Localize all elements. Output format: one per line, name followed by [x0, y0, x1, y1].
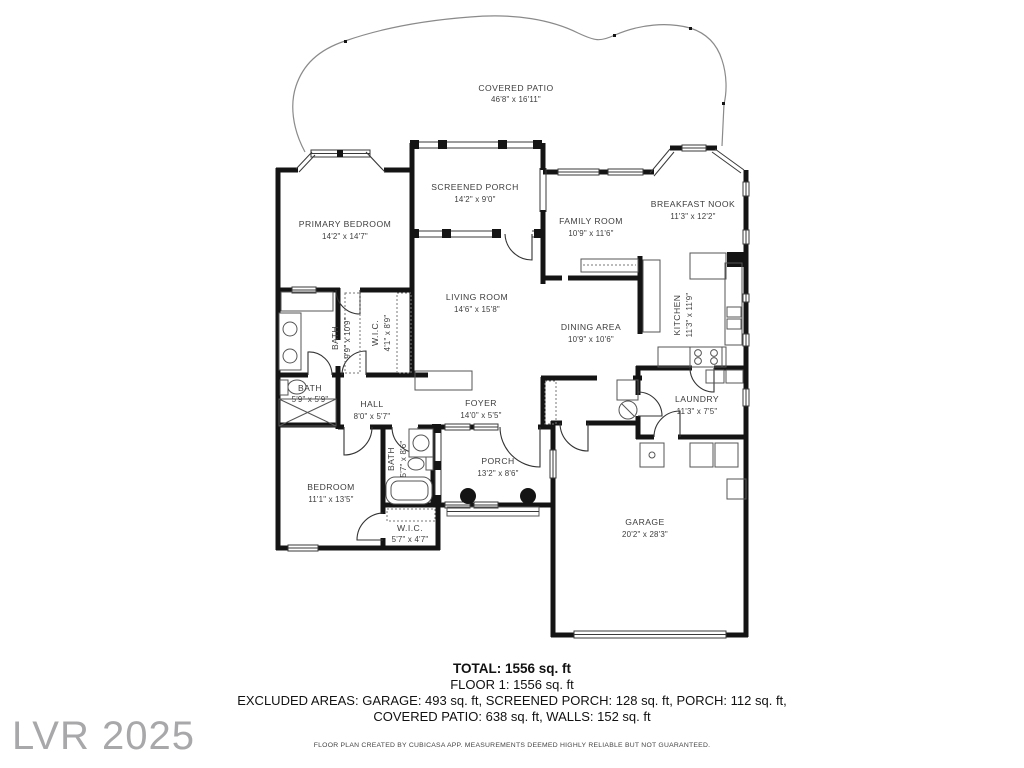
room-label-wic-primary: W.I.C. [370, 320, 380, 346]
room-dims-garage: 20'2" x 28'3" [622, 530, 668, 539]
room-dims-wic-primary: 4'1" x 8'9" [383, 315, 392, 352]
garage-cabinet [727, 479, 746, 499]
room-label-porch: PORCH [481, 456, 514, 466]
laundry-counter [706, 370, 724, 383]
fixtures [279, 253, 746, 521]
room-dims-primary-bedroom: 14'2" x 14'7" [322, 232, 368, 241]
room-label-screened-porch: SCREENED PORCH [431, 182, 518, 192]
closet-rod [397, 293, 411, 373]
room-label-laundry: LAUNDRY [675, 394, 719, 404]
floor-plan-page: COVERED PATIO 46'8" x 16'11" PRIMARY BED… [0, 0, 1024, 768]
burner [711, 358, 718, 365]
room-label-covered-patio: COVERED PATIO [478, 83, 553, 93]
room-dims-bedroom: 11'1" x 13'5" [308, 495, 353, 504]
room-label-bath-primary: BATH [330, 326, 340, 350]
floor-plan-drawing: COVERED PATIO 46'8" x 16'11" PRIMARY BED… [0, 0, 1024, 768]
utility-sink [640, 443, 664, 467]
porch-column [520, 488, 536, 504]
room-label-family-room: FAMILY ROOM [559, 216, 623, 226]
room-label-dining-area: DINING AREA [561, 322, 621, 332]
room-label-garage: GARAGE [625, 517, 664, 527]
room-dims-kitchen: 11'3" x 11'9" [685, 293, 694, 338]
washer [690, 443, 713, 467]
water-softener [617, 380, 638, 400]
room-dims-bath-hall: 5'9" x 5'9" [292, 395, 329, 404]
toilet-tank [426, 457, 433, 470]
room-label-breakfast-nook: BREAKFAST NOOK [651, 199, 735, 209]
room-dims-family-room: 10'9" x 11'6" [568, 229, 613, 238]
room-label-primary-bedroom: PRIMARY BEDROOM [299, 219, 391, 229]
media-console [581, 259, 638, 272]
excluded-areas-line1: EXCLUDED AREAS: GARAGE: 493 sq. ft, SCRE… [0, 693, 1024, 709]
coat-closet [545, 381, 556, 424]
doors [308, 234, 714, 540]
stove [690, 347, 722, 367]
room-dims-screened-porch: 14'2" x 9'0" [454, 195, 495, 204]
floor-area: FLOOR 1: 1556 sq. ft [0, 677, 1024, 693]
room-dims-dining-area: 10'9" x 10'6" [568, 335, 614, 344]
kitchen-counter [643, 260, 660, 332]
room-dims-wic-bedroom: 5'7" x 4'7" [392, 535, 429, 544]
room-dims-covered-patio: 46'8" x 16'11" [491, 95, 541, 104]
watermark: LVR 2025 [12, 714, 195, 759]
dryer [715, 443, 738, 467]
toilet-bowl [408, 458, 424, 470]
kitchen-sink [727, 319, 741, 329]
kitchen-counter [690, 253, 726, 279]
room-dims-living-room: 14'6" x 15'8" [454, 305, 500, 314]
kitchen-counter [725, 263, 742, 345]
kitchen-sink [727, 307, 741, 317]
room-label-wic-bedroom: W.I.C. [397, 523, 423, 533]
fireplace [727, 252, 746, 267]
room-dims-breakfast-nook: 11'3" x 12'2" [670, 212, 715, 221]
burner [711, 350, 718, 357]
room-dims-porch: 13'2" x 8'6" [477, 469, 518, 478]
room-label-kitchen: KITCHEN [672, 295, 682, 336]
laundry-counter [726, 370, 743, 383]
burner [695, 350, 702, 357]
burner [695, 358, 702, 365]
porch-column [460, 488, 476, 504]
toilet-tank [280, 380, 288, 395]
room-dims-foyer: 14'0" x 5'5" [460, 411, 501, 420]
room-label-living-room: LIVING ROOM [446, 292, 508, 302]
room-dims-hall: 8'0" x 5'7" [354, 412, 391, 421]
room-label-bath-guest: BATH [386, 447, 396, 471]
room-label-foyer: FOYER [465, 398, 497, 408]
room-dims-laundry: 11'3" x 7'5" [677, 407, 718, 416]
room-label-bath-hall: BATH [298, 383, 322, 393]
room-dims-bath-guest: 5'7" x 8'6" [399, 441, 408, 478]
closet-rod [387, 509, 435, 521]
room-label-hall: HALL [360, 399, 383, 409]
room-label-bedroom: BEDROOM [307, 482, 355, 492]
room-dims-bath-primary: 9'9" x 10'9" [343, 317, 352, 358]
total-area: TOTAL: 1556 sq. ft [0, 661, 1024, 677]
linen-closet [281, 292, 333, 311]
